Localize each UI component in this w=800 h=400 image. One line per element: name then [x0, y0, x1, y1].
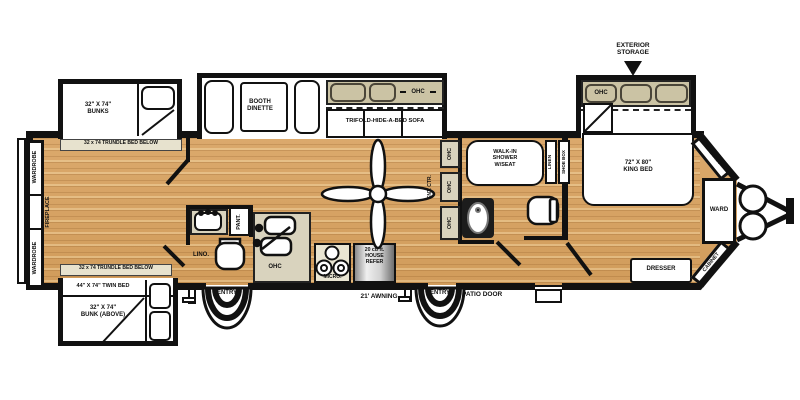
ceiling-fan: [322, 140, 434, 248]
booth-dinette-label: BOOTH DINETTE: [222, 99, 298, 113]
bath-toilet: [528, 197, 558, 224]
entry-left-label: ENTRY: [204, 290, 250, 297]
hitch-coupler: [786, 198, 794, 224]
dresser-label: DRESSER: [630, 266, 692, 273]
awning-label: 21' AWNING: [348, 293, 410, 300]
lino-label: LINO.: [186, 252, 216, 259]
shower-label: WALK-IN SHOWER W/SEAT: [470, 149, 540, 168]
pantry-label: PANT.: [235, 209, 243, 235]
propane-tanks: [740, 186, 766, 239]
kitchen-sink: [254, 217, 295, 255]
bunk-above-label: 32" X 74" BUNK (ABOVE): [62, 305, 144, 319]
ohc-upper-label: OHC: [446, 141, 454, 167]
bunks-label: 32" X 74" BUNKS: [62, 102, 134, 116]
sofa-ohc-label: OHC: [398, 89, 438, 96]
stove-burners: [317, 247, 349, 276]
fireplace-label: FIREPLACE: [44, 189, 52, 235]
wardrobe-top-label: WARDROBE: [31, 142, 39, 192]
ent-ctr-label: ENT. CTR.: [426, 169, 434, 205]
exterior-storage-arrow: [624, 61, 642, 76]
bath-sink-bowl: [468, 203, 488, 233]
bunk-bed-detail: [138, 84, 174, 136]
patio-door-label: PATIO DOOR: [462, 291, 532, 298]
refer-label: 20 cu ft. HOUSE REFER: [353, 248, 396, 266]
bed-ohc-label: OHC: [585, 90, 617, 97]
midbath-sink: [195, 210, 221, 230]
trundle-top-label: 32 x 74 TRUNDLE BED BELOW: [60, 141, 182, 147]
king-bed-label: 72" X 80" KING BED: [582, 160, 694, 174]
micro-label: MICRO.: [314, 275, 351, 281]
king-bed-pillow-fold: [584, 104, 612, 132]
midbath-toilet: [216, 239, 244, 269]
trundle-bottom-label: 32 x 74 TRUNDLE BED BELOW: [60, 266, 172, 272]
sofa-label: TRIFOLD-HIDE-A-BED SOFA: [328, 118, 442, 125]
twin-bed-label: 44" X 74" TWIN BED: [60, 283, 146, 289]
kitchen-ohc-label: OHC: [253, 264, 297, 271]
ohc-middle-label: OHC: [446, 174, 454, 200]
linework-overlay: [0, 0, 800, 400]
linen-label: LINEN: [547, 142, 555, 182]
exterior-storage-label: EXTERIOR STORAGE: [600, 42, 666, 57]
ward-label: WARD: [702, 207, 736, 214]
shoe-box-label: SHOE BOX: [560, 142, 568, 182]
entry-right-label: ENTRY: [417, 290, 463, 297]
ohc-lower-label: OHC: [446, 210, 454, 236]
wardrobe-bottom-label: WARDROBE: [31, 233, 39, 283]
rv-floorplan: WARDROBE WARDROBE FIREPLACE 32" X 74" BU…: [0, 0, 800, 400]
